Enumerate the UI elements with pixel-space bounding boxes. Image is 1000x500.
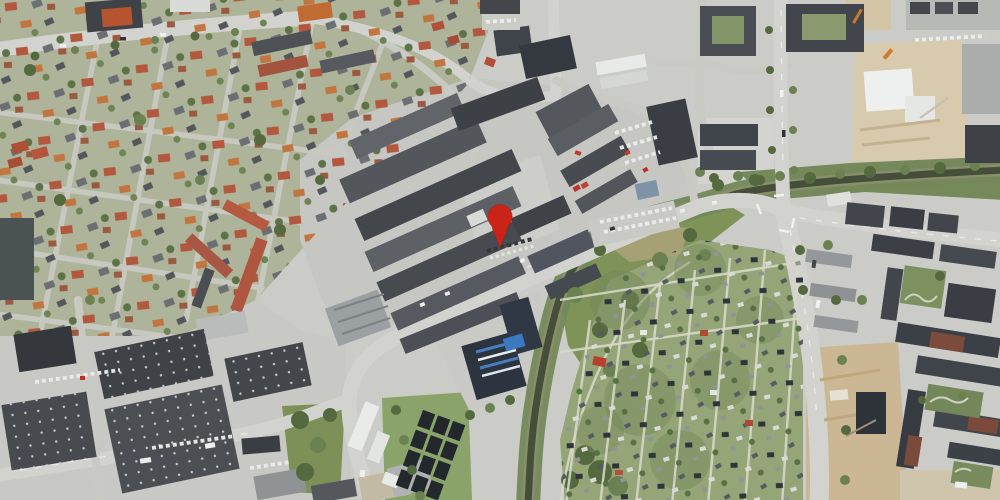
truck xyxy=(955,481,967,488)
satellite-imagery xyxy=(0,0,1000,500)
aerial-map[interactable] xyxy=(0,0,1000,500)
